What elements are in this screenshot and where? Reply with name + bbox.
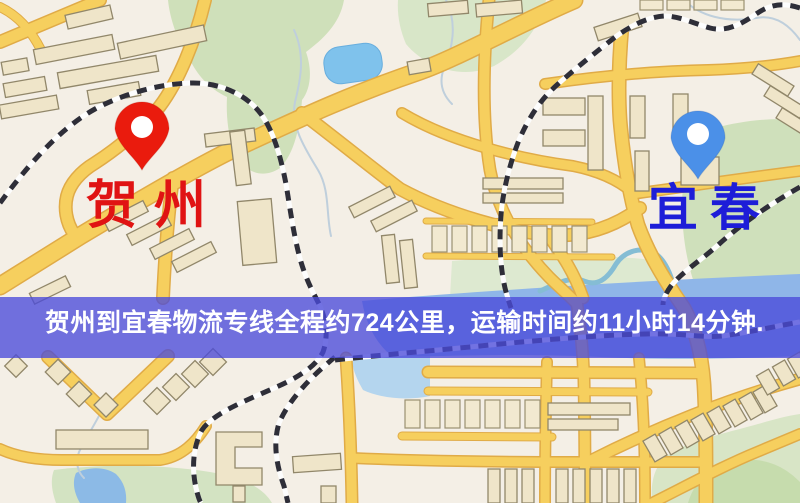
route-banner: 贺州到宜春物流专线全程约724公里，运输时间约11小时14分钟. [0,297,800,358]
map-view[interactable]: 贺州到宜春物流专线全程约724公里，运输时间约11小时14分钟. 贺州 宜春 [0,0,800,503]
destination-city-label: 宜春 [648,180,772,236]
origin-city-label: 贺州 [86,177,222,235]
route-banner-text: 贺州到宜春物流专线全程约724公里，运输时间约11小时14分钟. [45,308,764,337]
